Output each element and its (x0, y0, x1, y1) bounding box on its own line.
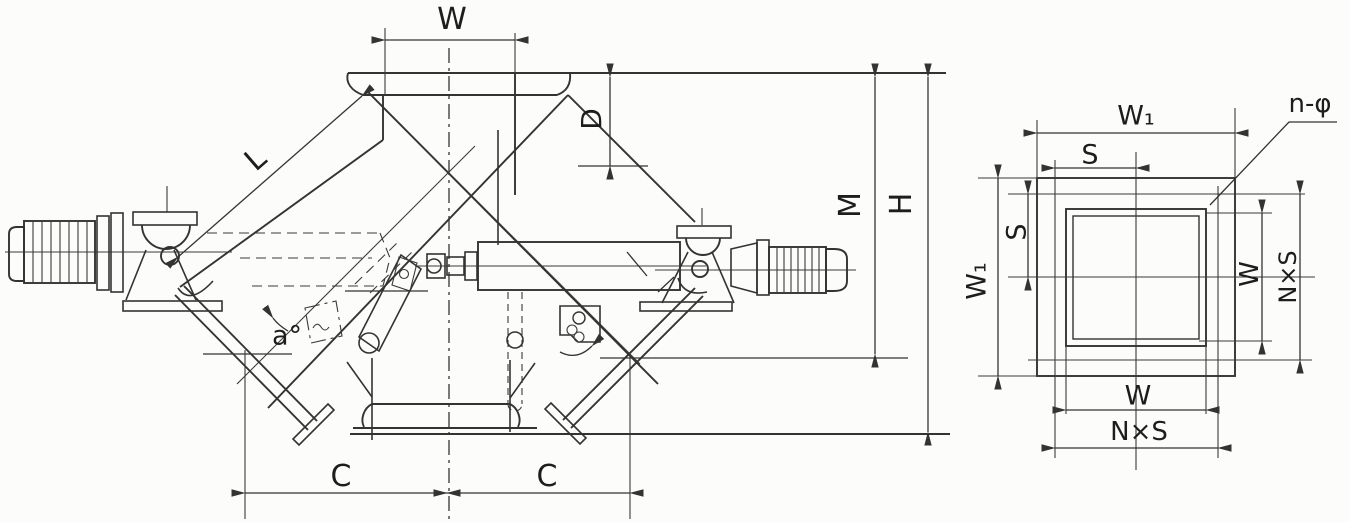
technical-drawing-canvas: W L D M H C C a° W₁ S n-φ W₁ S W N×S W N… (0, 0, 1350, 522)
right-actuator-motor (640, 208, 856, 311)
dim-label-inlet-width: W (437, 5, 467, 35)
dim-line-l (178, 96, 362, 257)
dim-label-center-left: C (331, 462, 352, 492)
rotation-arrow (560, 346, 592, 355)
dim-label-bolt-holes: n-φ (1288, 91, 1331, 117)
dim-label-w1-left: W₁ (964, 262, 991, 300)
dim-label-center-right: C (537, 462, 558, 492)
extension-lines (978, 108, 1272, 414)
inlet-flange (347, 28, 570, 245)
right-pivot-pin (692, 261, 708, 277)
left-flap-seal-plate (293, 404, 334, 445)
left-flap (175, 286, 334, 445)
dim-label-inlet-depth: D (578, 108, 606, 130)
left-actuator-motor (5, 186, 232, 311)
dim-label-s-top: S (1081, 142, 1098, 169)
right-flap-seal-plate (545, 403, 586, 444)
dim-label-base-height: M (836, 192, 866, 218)
dim-label-nxs-bottom: N×S (1110, 419, 1168, 445)
left-flap-open-dashed (207, 233, 412, 343)
side-view (5, 28, 950, 520)
dim-label-w1-top: W₁ (1117, 103, 1155, 130)
lever-linkage (345, 255, 428, 353)
dim-label-flap-angle: a° (272, 323, 302, 350)
bolt-hole-leader-line (1210, 122, 1337, 205)
dim-label-w-bottom: W (1125, 383, 1152, 410)
dim-label-w-right: W (1237, 261, 1263, 287)
lever-pin (359, 333, 379, 353)
dim-label-s-left: S (1004, 223, 1031, 240)
dim-label-nxs-right: N×S (1276, 250, 1300, 303)
dim-label-overall-height: H (887, 193, 917, 216)
